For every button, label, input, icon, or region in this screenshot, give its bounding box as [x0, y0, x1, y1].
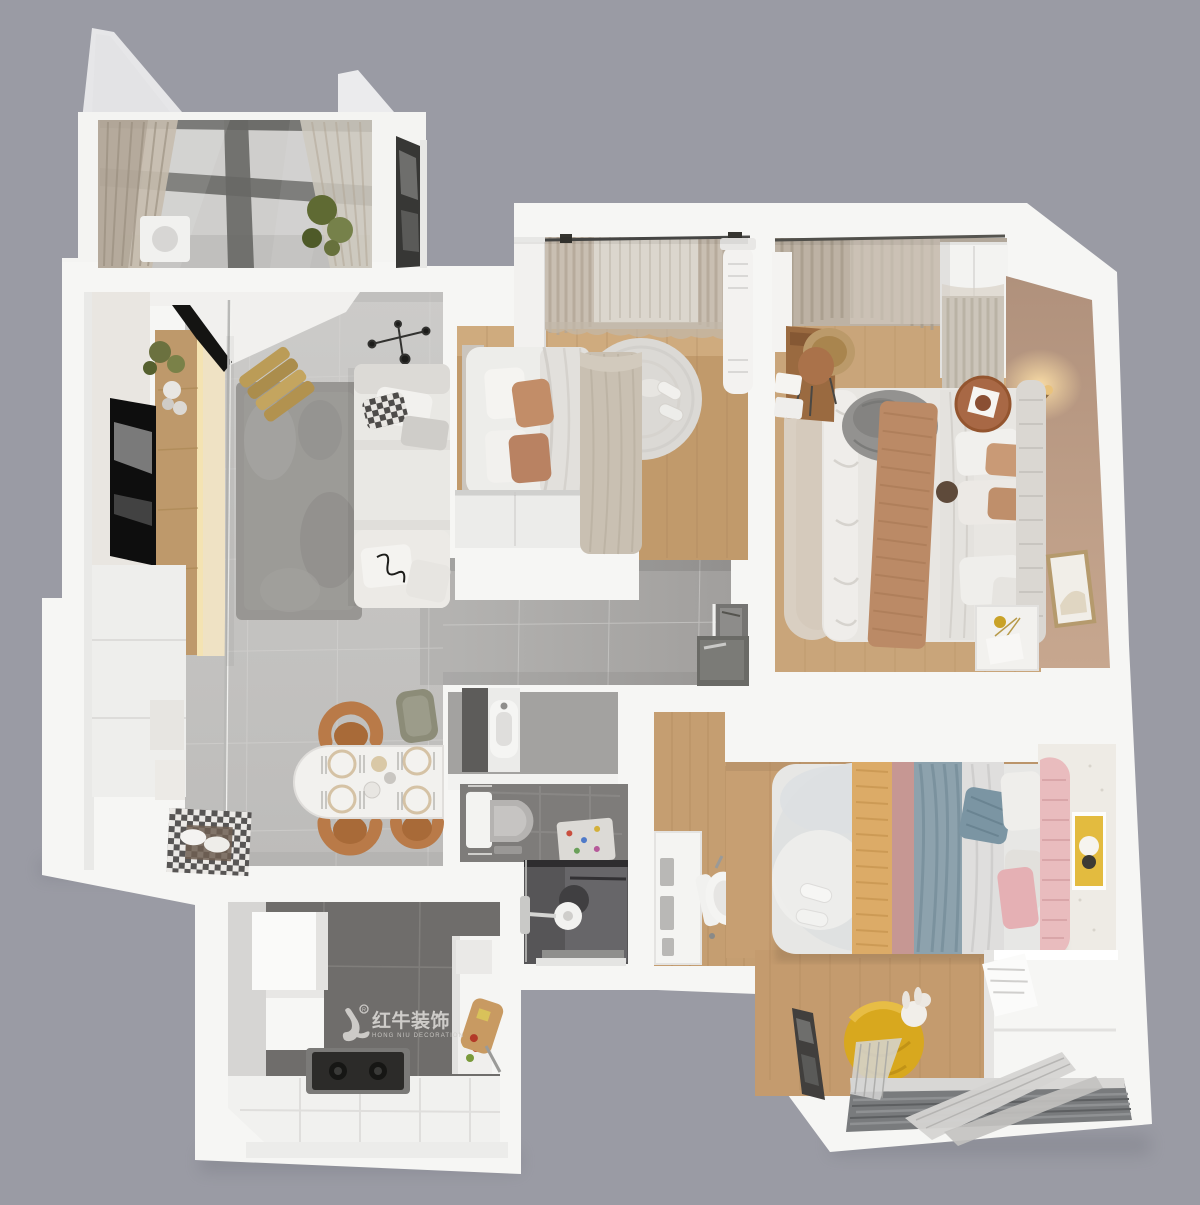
svg-text:红牛装饰: 红牛装饰 — [372, 1009, 450, 1032]
svg-text:R: R — [362, 1008, 366, 1014]
svg-text:HONG NIU DECORATION: HONG NIU DECORATION — [372, 1033, 464, 1039]
